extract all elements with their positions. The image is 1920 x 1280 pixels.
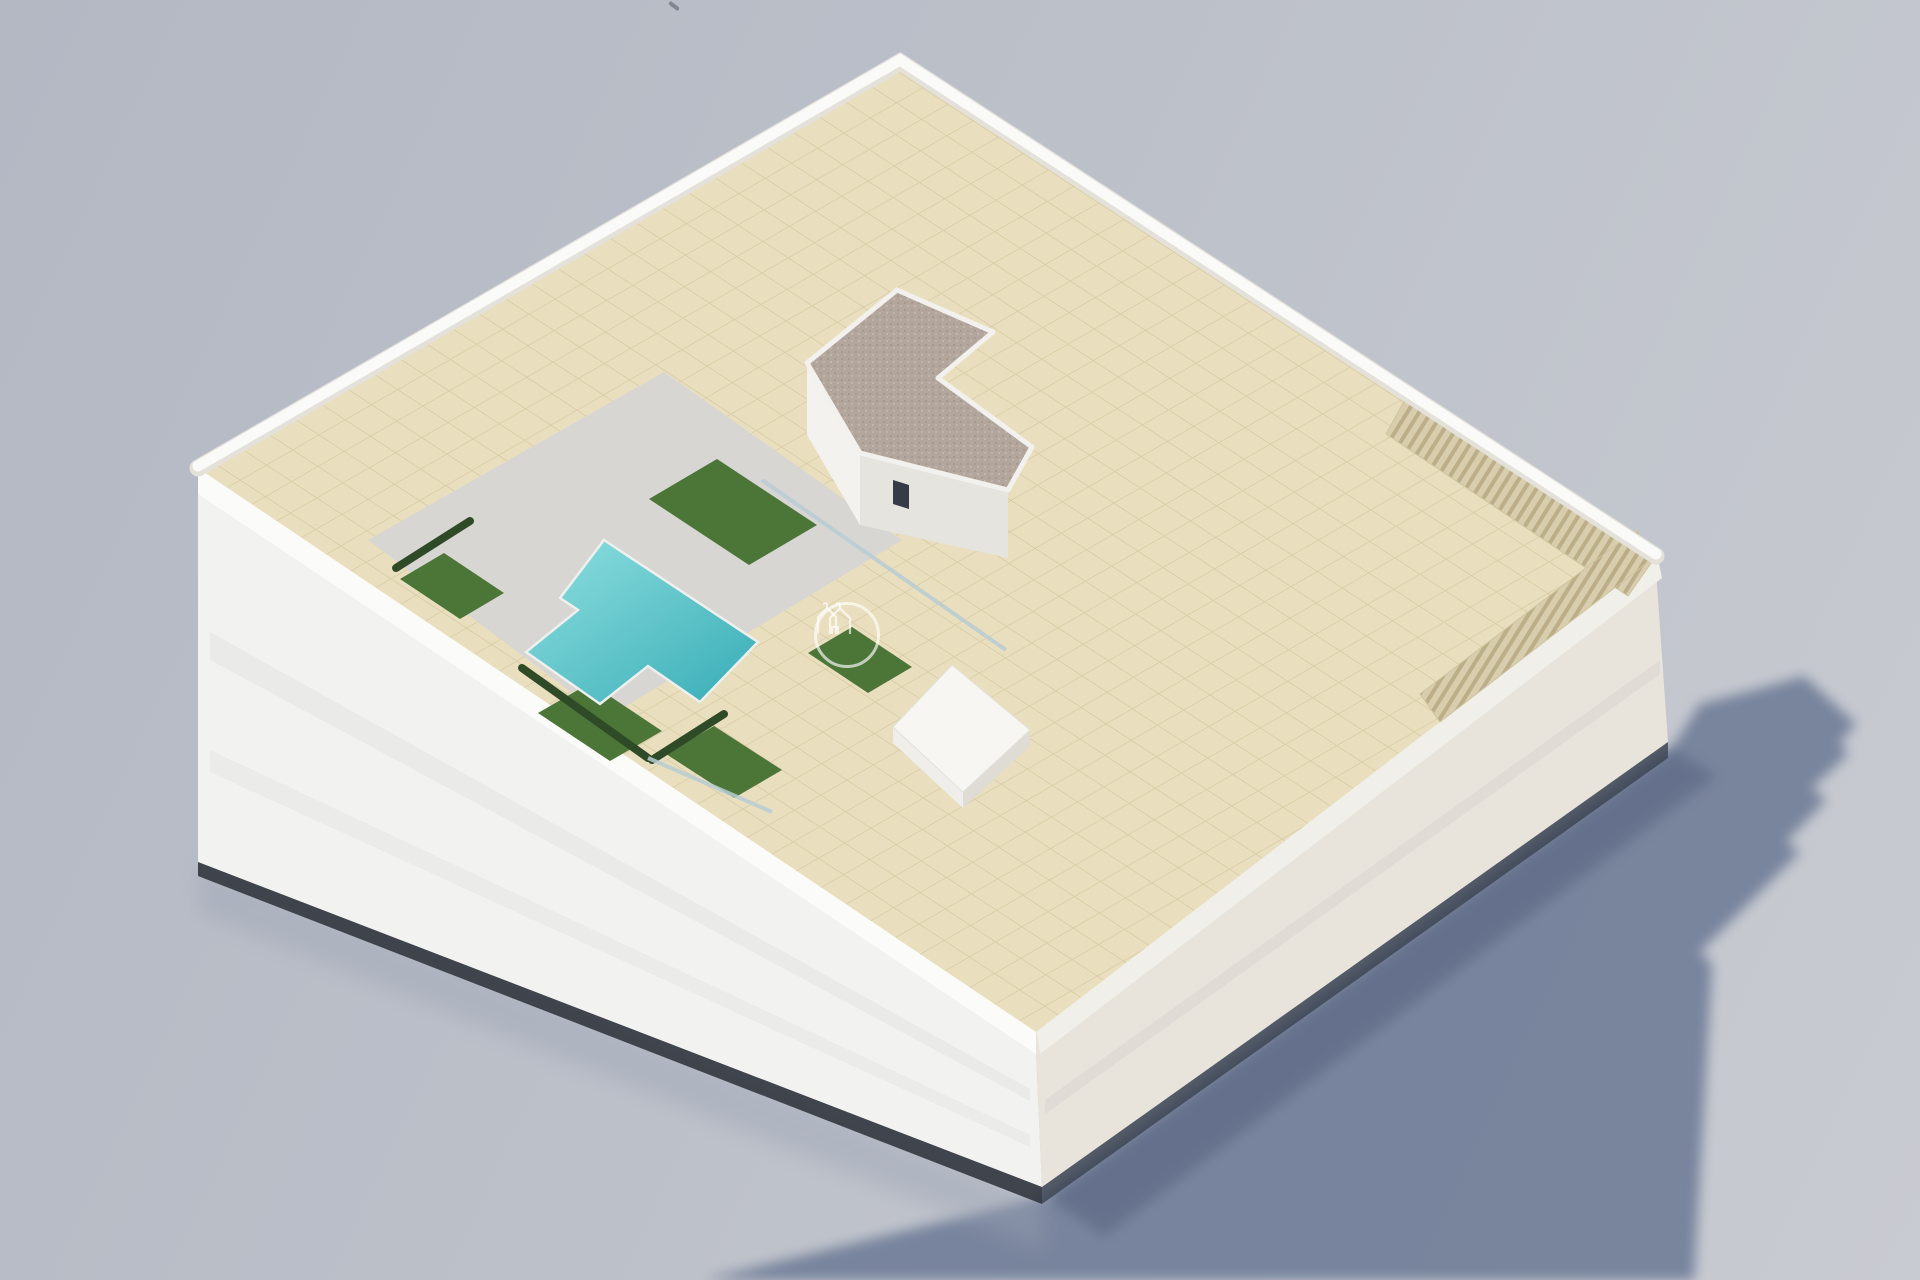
building-render bbox=[0, 0, 1920, 1280]
render-image bbox=[0, 0, 1920, 1280]
